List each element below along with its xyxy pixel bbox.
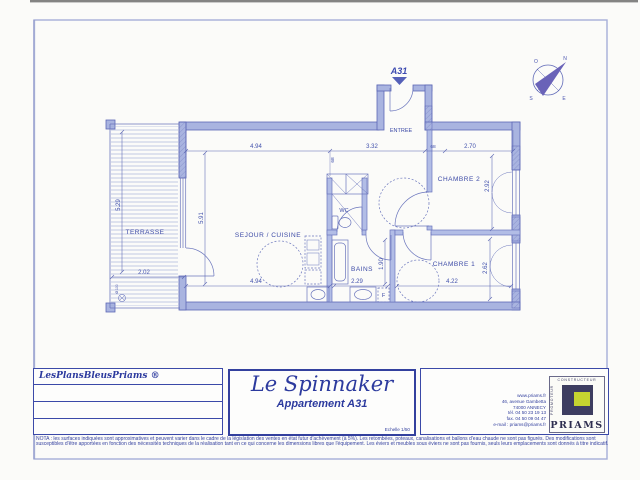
compass-east: E [562, 96, 566, 102]
contact-block: www.priams.fr 46, avenue Gambetta 74000 … [493, 393, 546, 428]
dim-sejour-top: 4.94 [250, 144, 262, 150]
unit-label: A31 [390, 66, 408, 76]
dim-terrasse-width: 2.02 [138, 270, 150, 276]
dim-hall: 3.32 [366, 144, 378, 150]
compass-icon: O N S E [529, 56, 567, 102]
label-bath-box: F [382, 293, 386, 299]
dim-door-a: 68 [430, 144, 436, 150]
dim-bains-height: 1.90 [379, 258, 385, 270]
compass-west: O [534, 59, 538, 65]
terrasse-decking: Ø 100 [110, 124, 180, 308]
logo-constructeur-label: CONSTRUCTEUR [550, 378, 604, 382]
wall-hatching [179, 106, 520, 308]
table-icon [257, 241, 303, 287]
priams-box: www.priams.fr 46, avenue Gambetta 74000 … [420, 368, 609, 435]
logo-navy-square [562, 385, 593, 415]
contact-line: e-mail : priams@priams.fr [493, 422, 546, 428]
nota-line-2: susceptibles d'être apportées en fonctio… [36, 442, 610, 447]
label-terrasse: TERRASSE [125, 229, 164, 236]
empty-row [34, 385, 222, 402]
empty-row [34, 402, 222, 419]
logo-priams-text: PRIAMS [550, 420, 604, 431]
residence-name: Le Spinnaker [230, 372, 414, 396]
scale-note: Echelle 1/50 [385, 427, 410, 432]
plans-bleus-brand: LesPlansBleusPriams ® [34, 369, 222, 385]
unit-callout: A31 [390, 66, 408, 85]
dim-terrasse-height: 5.29 [116, 199, 122, 211]
priams-logo: CONSTRUCTEUR PROMOTEUR PRIAMS [549, 376, 605, 433]
label-bains: BAINS [351, 266, 373, 273]
compass-south: S [529, 96, 533, 102]
dim-sejour-bottom: 4.94 [250, 279, 262, 285]
label-wc: WC [339, 208, 348, 214]
dim-chambre1-height: 2.62 [483, 262, 489, 274]
interior-partitions [327, 130, 520, 302]
nota-disclaimer: NOTA : les surfaces indiquées sont appro… [36, 437, 610, 448]
compass-north: N [563, 56, 567, 62]
dim-chambre2-height: 2.92 [485, 180, 491, 192]
dim-door-b: 68 [330, 157, 336, 163]
logo-green-square [574, 392, 590, 406]
apartment-name: Appartement A31 [230, 398, 414, 410]
label-chambre1: CHAMBRE 1 [433, 261, 475, 268]
dim-chambre2: 2.70 [464, 144, 476, 150]
down-arrow-icon [392, 77, 407, 85]
label-sejour: SEJOUR / CUISINE [235, 232, 301, 239]
dim-sejour-height: 5.91 [199, 212, 205, 224]
dim-bains-width: 2.29 [351, 279, 363, 285]
empty-row [34, 419, 222, 435]
label-chambre2: CHAMBRE 2 [438, 176, 480, 183]
dim-chambre1-width: 4.22 [446, 279, 458, 285]
logo-promoteur-label: PROMOTEUR [550, 385, 554, 415]
toilet-bowl-icon [339, 218, 351, 228]
contact-line: 46, avenue Gambetta [493, 399, 546, 405]
windows [180, 170, 519, 289]
kitchen-unit-icon [305, 236, 321, 268]
title-box: Le Spinnaker Appartement A31 Echelle 1/5… [228, 369, 416, 436]
drain-label: Ø 100 [115, 284, 119, 293]
label-entree: ENTREE [390, 128, 413, 134]
plans-bleus-box: LesPlansBleusPriams ® [33, 368, 223, 435]
